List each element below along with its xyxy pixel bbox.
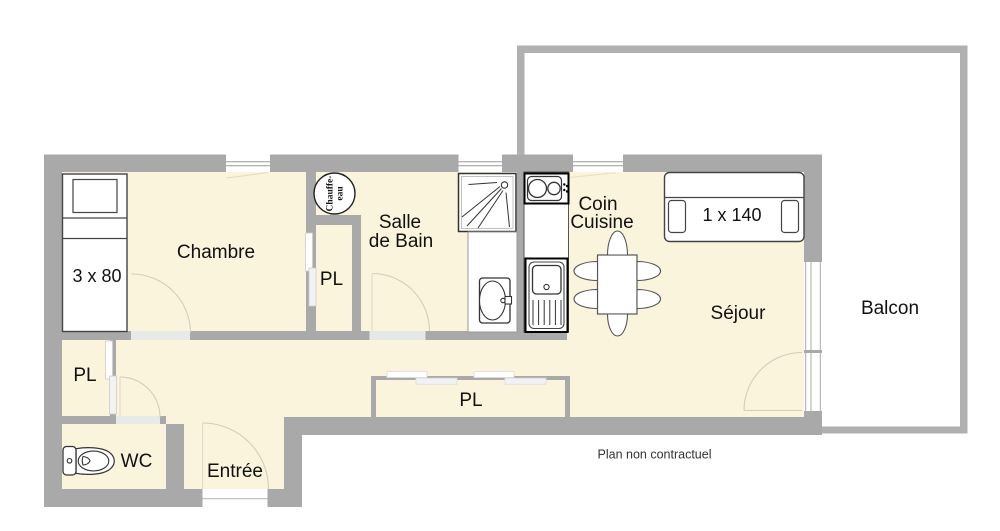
svg-text:PL: PL — [73, 365, 96, 386]
svg-text:Chauffe-: Chauffe- — [326, 176, 336, 212]
svg-text:Salle: Salle — [379, 212, 421, 233]
svg-text:eau: eau — [336, 186, 346, 201]
svg-text:Balcon: Balcon — [861, 298, 919, 319]
svg-text:Chambre: Chambre — [177, 242, 255, 263]
svg-text:PL: PL — [320, 269, 343, 290]
svg-text:de Bain: de Bain — [369, 231, 433, 252]
svg-text:3 x 80: 3 x 80 — [72, 266, 121, 286]
svg-text:1 x 140: 1 x 140 — [702, 205, 761, 225]
svg-text:WC: WC — [121, 451, 153, 472]
svg-text:Cuisine: Cuisine — [570, 212, 633, 233]
svg-text:Séjour: Séjour — [711, 303, 767, 324]
svg-text:Plan non contractuel: Plan non contractuel — [598, 448, 712, 462]
svg-text:PL: PL — [459, 390, 482, 411]
svg-text:Entrée: Entrée — [207, 461, 263, 482]
